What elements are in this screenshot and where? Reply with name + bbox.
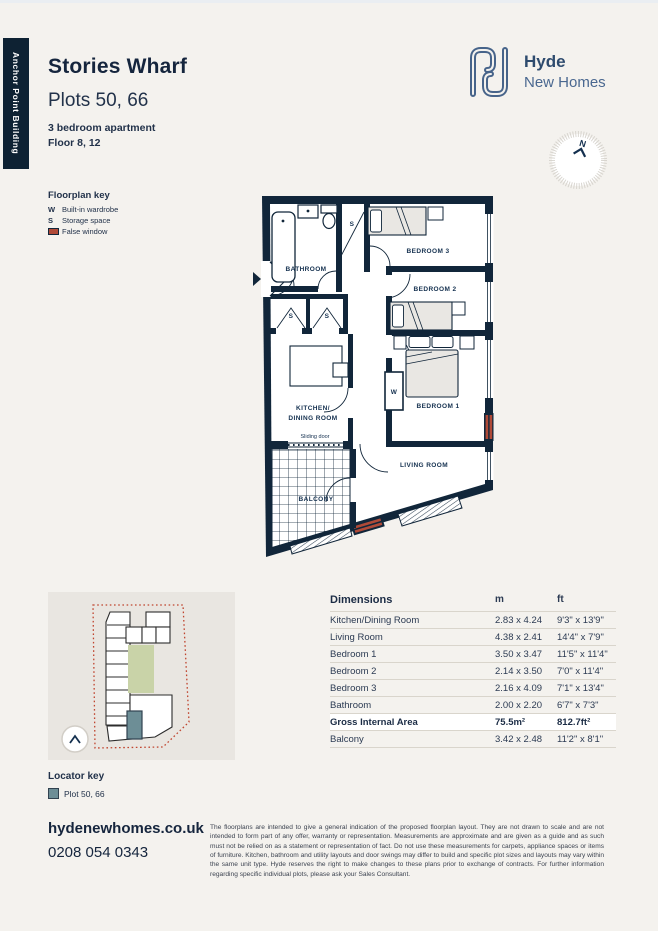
room-feet: 6'7" x 7'3" bbox=[557, 700, 616, 711]
locator-key-title: Locator key bbox=[48, 771, 105, 782]
phone-number: 0208 054 0343 bbox=[48, 844, 204, 861]
disclaimer-text: The floorplans are intended to give a ge… bbox=[210, 823, 604, 879]
label-kitchen-2: DINING ROOM bbox=[288, 415, 337, 422]
entrance-arrow-icon bbox=[253, 272, 261, 286]
room-metres: 2.14 x 3.50 bbox=[495, 666, 557, 677]
room-name: Bedroom 3 bbox=[330, 683, 495, 694]
dimension-row: Balcony 3.42 x 2.48 11'2" x 8'1" bbox=[330, 730, 616, 747]
dimension-row: Bedroom 1 3.50 x 3.47 11'5" x 11'4" bbox=[330, 645, 616, 662]
highlighted-plot bbox=[127, 711, 142, 739]
room-feet: 11'5" x 11'4" bbox=[557, 649, 616, 660]
floorplan: BATHROOM S BEDROOM 3 BEDROOM 2 BEDROOM 1… bbox=[248, 190, 512, 570]
label-kitchen-1: KITCHEN/ bbox=[296, 405, 330, 412]
plot-label: Plot 50, 66 bbox=[64, 789, 105, 799]
label-bedroom1: BEDROOM 1 bbox=[417, 403, 460, 410]
logo-brand-name: Hyde bbox=[524, 52, 606, 72]
floor-info: Floor 8, 12 bbox=[48, 137, 187, 149]
apartment-type: 3 bedroom apartment bbox=[48, 122, 187, 134]
label-living-room: LIVING ROOM bbox=[400, 462, 448, 469]
room-metres: 2.83 x 4.24 bbox=[495, 615, 557, 626]
label-storage-1: S bbox=[350, 221, 355, 228]
room-name: Gross Internal Area bbox=[330, 717, 495, 728]
key-symbol-s: S bbox=[48, 216, 62, 225]
sliding-door-track bbox=[288, 441, 343, 449]
room-feet: 14'4" x 7'9" bbox=[557, 632, 616, 643]
site-green-space bbox=[128, 645, 154, 693]
room-feet: 11'2" x 8'1" bbox=[557, 734, 616, 745]
label-bathroom: BATHROOM bbox=[286, 266, 327, 273]
dimension-row: Bedroom 2 2.14 x 3.50 7'0" x 11'4" bbox=[330, 662, 616, 679]
logo-brand-sub: New Homes bbox=[524, 74, 606, 91]
room-name: Bedroom 1 bbox=[330, 649, 495, 660]
label-wardrobe: W bbox=[391, 389, 398, 396]
room-feet: 9'3" x 13'9" bbox=[557, 615, 616, 626]
website-link[interactable]: hydenewhomes.co.uk bbox=[48, 820, 204, 837]
locator-compass-icon bbox=[62, 726, 88, 752]
room-feet: 7'0" x 11'4" bbox=[557, 666, 616, 677]
dimensions-table: Dimensions m ft Kitchen/Dining Room 2.83… bbox=[330, 591, 616, 748]
closet-opening-2 bbox=[312, 328, 339, 334]
room-name: Bedroom 2 bbox=[330, 666, 495, 677]
key-label-false-window: False window bbox=[62, 227, 107, 236]
dimension-row: Gross Internal Area 75.5m² 812.7ft² bbox=[330, 713, 616, 730]
hyde-logo: Hyde New Homes bbox=[464, 44, 606, 100]
header: Stories Wharf Plots 50, 66 3 bedroom apa… bbox=[48, 55, 187, 149]
building-name-label: Anchor Point Building bbox=[11, 52, 21, 154]
key-item-false-window: False window bbox=[48, 227, 118, 236]
dimension-row: Bedroom 3 2.16 x 4.09 7'1" x 13'4" bbox=[330, 679, 616, 696]
room-name: Balcony bbox=[330, 734, 495, 745]
label-balcony: BALCONY bbox=[299, 496, 334, 503]
room-metres: 3.50 x 3.47 bbox=[495, 649, 557, 660]
page-title: Stories Wharf bbox=[48, 55, 187, 79]
kitchen-counter-icon bbox=[290, 346, 348, 386]
col-feet: ft bbox=[557, 594, 616, 606]
key-label-wardrobe: Built-in wardrobe bbox=[62, 205, 118, 214]
key-label-storage: Storage space bbox=[62, 216, 110, 225]
dimensions-rows: Kitchen/Dining Room 2.83 x 4.24 9'3" x 1… bbox=[330, 611, 616, 748]
building-name-tab: Anchor Point Building bbox=[3, 38, 29, 169]
false-window-swatch bbox=[48, 228, 59, 235]
dimensions-header: Dimensions m ft bbox=[330, 591, 616, 611]
floorplan-key: Floorplan key W Built-in wardrobe S Stor… bbox=[48, 190, 118, 236]
dimension-row: Kitchen/Dining Room 2.83 x 4.24 9'3" x 1… bbox=[330, 611, 616, 628]
footer-contact: hydenewhomes.co.uk 0208 054 0343 bbox=[48, 820, 204, 861]
compass-icon: N bbox=[548, 130, 608, 190]
plots-subtitle: Plots 50, 66 bbox=[48, 90, 187, 112]
locator-key: Locator key Plot 50, 66 bbox=[48, 771, 105, 799]
room-name: Bathroom bbox=[330, 700, 495, 711]
col-metres: m bbox=[495, 594, 557, 606]
top-strip bbox=[0, 0, 658, 3]
key-symbol-w: W bbox=[48, 205, 62, 214]
label-sliding-door: Sliding door bbox=[300, 434, 329, 440]
brochure-page: Anchor Point Building Stories Wharf Plot… bbox=[0, 0, 658, 931]
label-storage-2: S bbox=[289, 313, 294, 320]
label-storage-3: S bbox=[325, 313, 330, 320]
locator-map bbox=[48, 592, 235, 760]
sink-icon bbox=[298, 205, 318, 218]
floorplan-key-title: Floorplan key bbox=[48, 190, 118, 201]
room-metres: 75.5m² bbox=[495, 717, 557, 728]
label-bedroom3: BEDROOM 3 bbox=[407, 248, 450, 255]
dimensions-title: Dimensions bbox=[330, 594, 495, 606]
closet-opening-1 bbox=[276, 328, 302, 334]
dimension-row: Living Room 4.38 x 2.41 14'4" x 7'9" bbox=[330, 628, 616, 645]
room-metres: 2.00 x 2.20 bbox=[495, 700, 557, 711]
plot-swatch bbox=[48, 788, 59, 799]
locator-key-row: Plot 50, 66 bbox=[48, 788, 105, 799]
key-item-storage: S Storage space bbox=[48, 216, 118, 225]
room-metres: 3.42 x 2.48 bbox=[495, 734, 557, 745]
locator-panel bbox=[48, 592, 235, 760]
false-window-right bbox=[484, 413, 494, 441]
key-item-wardrobe: W Built-in wardrobe bbox=[48, 205, 118, 214]
room-name: Living Room bbox=[330, 632, 495, 643]
room-metres: 4.38 x 2.41 bbox=[495, 632, 557, 643]
room-name: Kitchen/Dining Room bbox=[330, 615, 495, 626]
hyde-logo-icon bbox=[464, 44, 514, 100]
room-feet: 7'1" x 13'4" bbox=[557, 683, 616, 694]
dimension-row: Bathroom 2.00 x 2.20 6'7" x 7'3" bbox=[330, 696, 616, 713]
room-metres: 2.16 x 4.09 bbox=[495, 683, 557, 694]
toilet-icon bbox=[321, 205, 337, 229]
label-bedroom2: BEDROOM 2 bbox=[414, 286, 457, 293]
room-feet: 812.7ft² bbox=[557, 717, 616, 728]
